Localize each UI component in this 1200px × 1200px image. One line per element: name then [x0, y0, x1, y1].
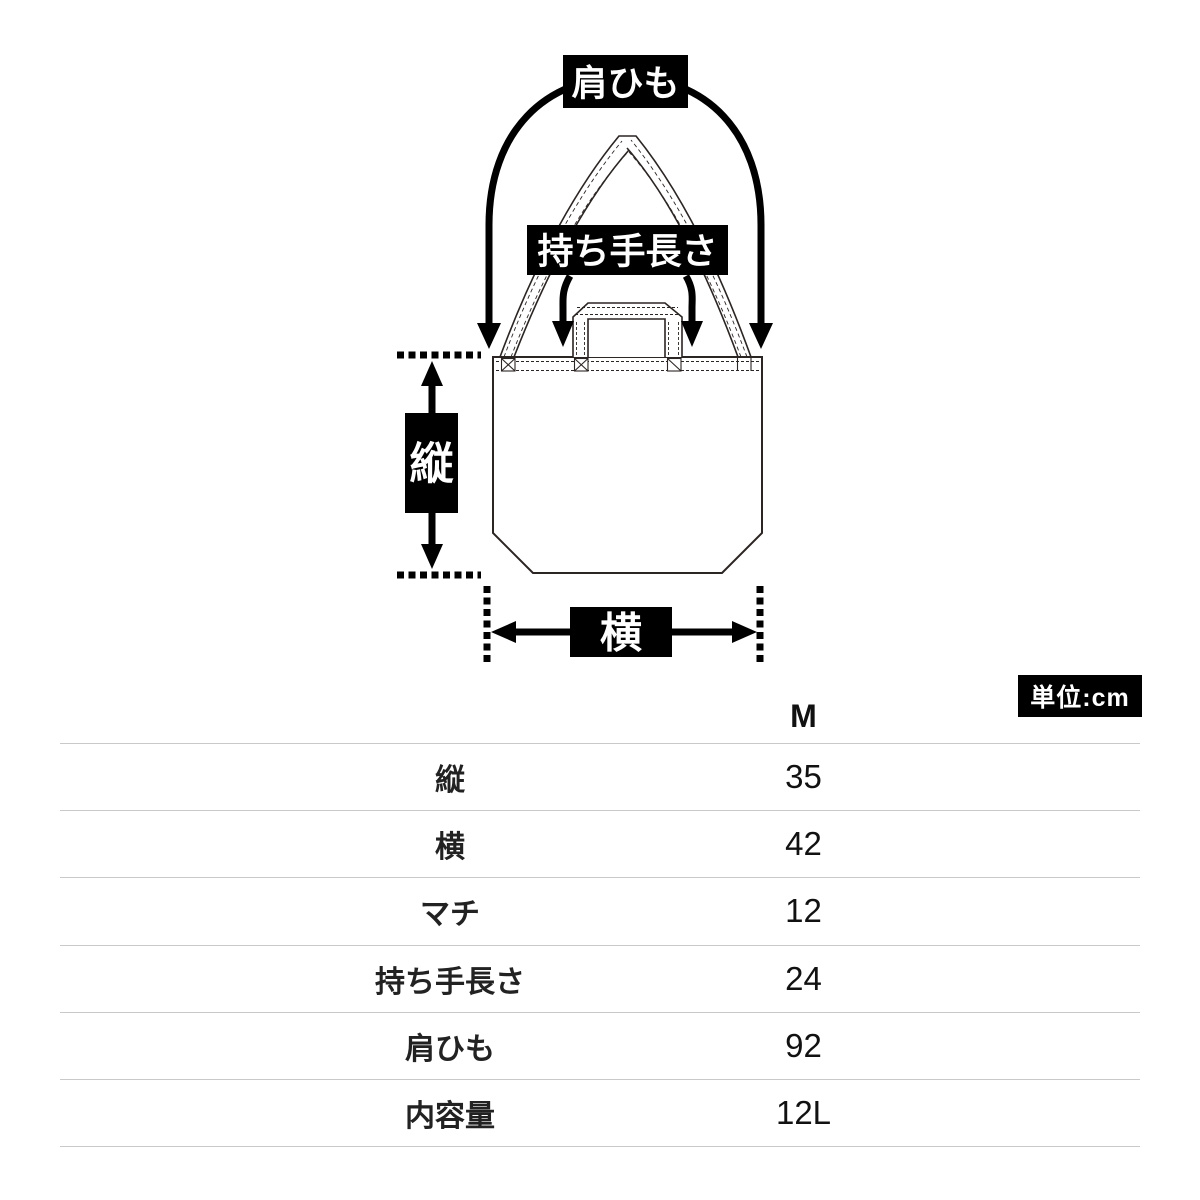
row-value: 35	[640, 758, 967, 796]
width-measure-arrow: 横	[487, 586, 760, 666]
row-value: 42	[640, 825, 967, 863]
handle-length-label: 持ち手長さ	[527, 225, 728, 275]
table-row: マチ 12	[60, 877, 1140, 944]
height-measure-arrow: 縦	[397, 355, 481, 575]
arrow-left-icon	[491, 621, 516, 643]
arrow-down-icon	[681, 321, 703, 347]
width-label: 横	[600, 610, 642, 657]
tote-bag-measurement-diagram: 肩ひも 持ち手長さ 縦 横	[0, 0, 1200, 675]
arrow-down-icon	[749, 323, 773, 349]
svg-text:肩ひも: 肩ひも	[571, 63, 679, 104]
size-column-header: M	[640, 694, 967, 738]
short-handle	[573, 303, 682, 357]
bag-body	[493, 357, 762, 573]
row-value: 12L	[640, 1094, 967, 1132]
size-table: 縦 35 横 42 マチ 12 持ち手長さ 24 肩ひも 92 内容量 12L	[60, 743, 1140, 1147]
shoulder-strap-label: 肩ひも	[563, 55, 688, 108]
table-row: 縦 35	[60, 743, 1140, 810]
row-value: 92	[640, 1027, 967, 1065]
arrow-down-icon	[421, 544, 443, 569]
arrow-down-icon	[552, 321, 574, 347]
arrow-up-icon	[421, 361, 443, 386]
svg-text:持ち手長さ: 持ち手長さ	[537, 231, 717, 272]
arrow-right-icon	[732, 621, 757, 643]
table-row: 肩ひも 92	[60, 1012, 1140, 1079]
unit-badge: 単位:cm	[1018, 675, 1142, 717]
height-label: 縦	[410, 440, 454, 489]
table-row: 持ち手長さ 24	[60, 945, 1140, 1012]
table-row: 内容量 12L	[60, 1079, 1140, 1147]
tote-bag-size-spec-sheet: 肩ひも 持ち手長さ 縦 横 単位:cm M	[0, 0, 1200, 1200]
row-value: 12	[640, 892, 967, 930]
row-value: 24	[640, 960, 967, 998]
table-row: 横 42	[60, 810, 1140, 877]
arrow-down-icon	[477, 323, 501, 349]
